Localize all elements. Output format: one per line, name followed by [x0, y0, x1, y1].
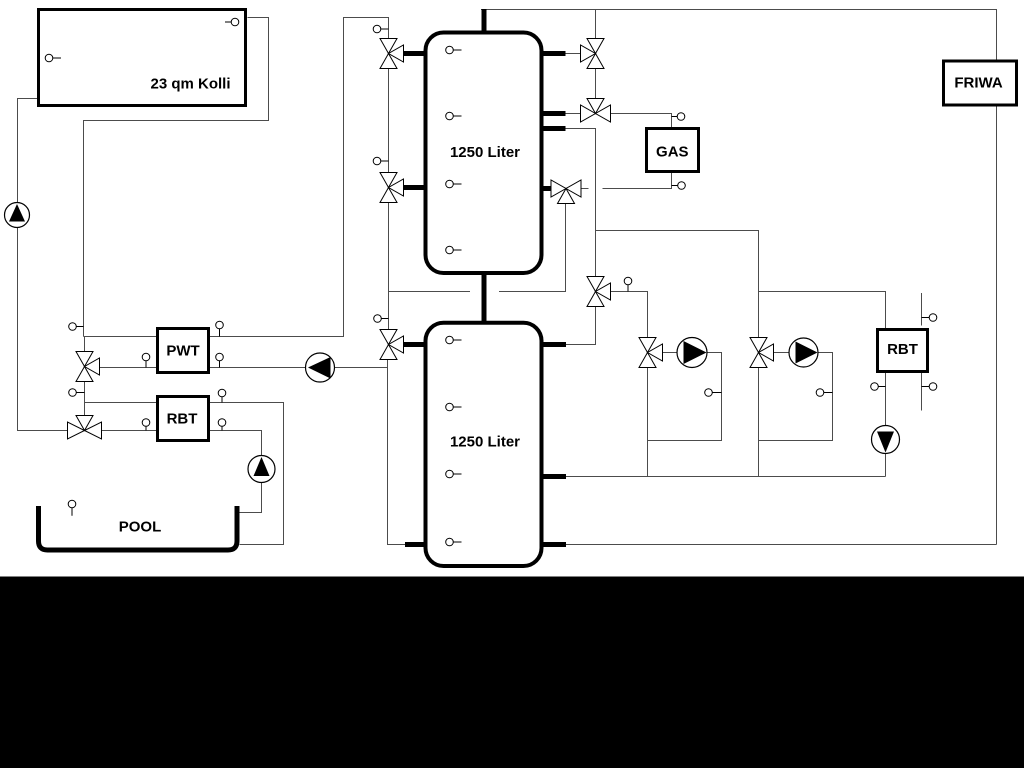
svg-text:1250 Liter: 1250 Liter: [450, 144, 520, 161]
svg-text:RBT: RBT: [887, 341, 918, 358]
svg-text:PWT: PWT: [166, 343, 199, 360]
svg-text:POOL: POOL: [119, 518, 162, 535]
svg-text:GAS: GAS: [656, 143, 689, 160]
svg-text:FRIWA: FRIWA: [954, 74, 1002, 91]
svg-text:RBT: RBT: [167, 410, 198, 427]
svg-text:23 qm Kolli: 23 qm Kolli: [150, 76, 230, 93]
svg-text:1250 Liter: 1250 Liter: [450, 434, 520, 451]
